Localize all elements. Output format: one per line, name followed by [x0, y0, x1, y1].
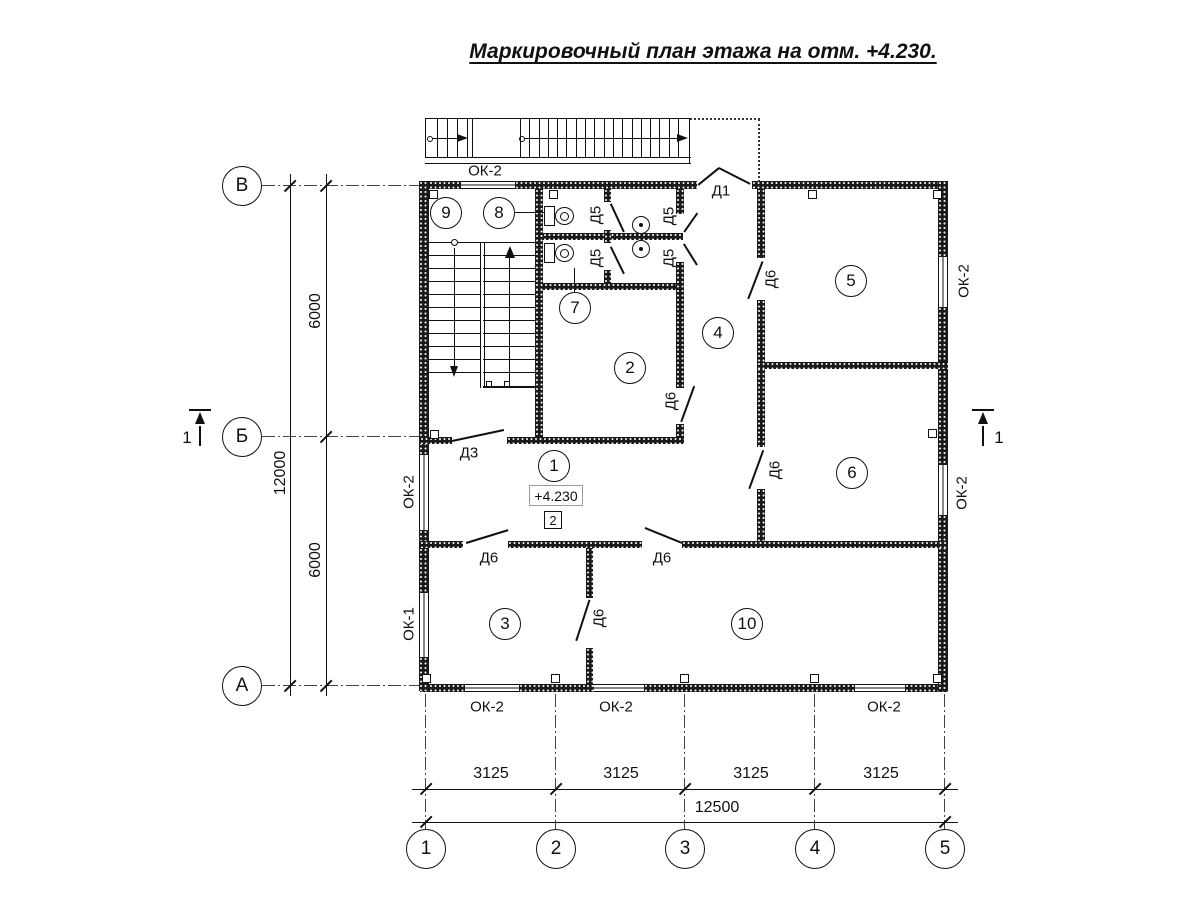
stair-tread: [483, 268, 535, 269]
node-marker: 2: [544, 511, 562, 529]
stair-tread: [483, 307, 535, 308]
wall-corridor-right: [757, 300, 765, 447]
window-mark-ok2: ОК-2: [468, 163, 502, 180]
door-leaf: [645, 527, 683, 543]
section-mark-shaft: [199, 426, 201, 446]
column-marker: [429, 190, 438, 199]
canopy-outline: [690, 118, 760, 120]
room-number-label: 4: [713, 323, 722, 343]
stair-edge: [428, 242, 535, 243]
wall-top: [515, 181, 697, 189]
ext-stair-edge: [425, 118, 426, 158]
stair-tread: [566, 118, 567, 157]
room-number-10: 10: [731, 608, 763, 640]
stair-tread: [641, 118, 642, 157]
room-number-label: 9: [441, 203, 450, 223]
door-mark-d5: Д5: [588, 206, 605, 225]
stair-tread: [585, 118, 586, 157]
axis-circle-v: В: [222, 166, 262, 206]
stair-tread: [483, 281, 535, 282]
axis-line: [684, 694, 685, 829]
door-leaf: [680, 386, 694, 422]
window-mark-ok2: ОК-2: [956, 264, 973, 298]
window-symbol: [594, 684, 644, 692]
door-mark-d3: Д3: [460, 445, 479, 462]
stair-tread: [483, 255, 535, 256]
axis-circle-b: Б: [222, 417, 262, 457]
column-marker: [933, 674, 942, 683]
wall-right: [938, 307, 948, 465]
wall-wc-partition: [604, 189, 611, 202]
stair-arrow-shaft: [432, 138, 458, 139]
window-symbol: [938, 257, 948, 307]
door-mark-d5: Д5: [661, 207, 678, 226]
axis-label: 5: [940, 838, 951, 860]
section-arrow-icon: [978, 412, 988, 424]
door-leaf: [575, 600, 590, 641]
stair-tread: [428, 333, 480, 334]
axis-circle-2: 2: [536, 829, 576, 869]
room-number-8: 8: [483, 197, 515, 229]
stair-tread: [613, 118, 614, 157]
toilet-bowl-inner: [560, 249, 569, 258]
door-mark-d6: Д6: [653, 550, 672, 567]
stair-tread: [576, 118, 577, 157]
wall-hall-south: [420, 541, 463, 548]
door-mark-d1: Д1: [712, 183, 731, 200]
axis-label: 3: [680, 838, 691, 860]
room-number-label: 7: [570, 298, 579, 318]
sink-drain: [639, 247, 643, 251]
window-symbol: [461, 181, 515, 189]
toilet-bowl-inner: [560, 212, 569, 221]
axis-line: [262, 185, 419, 186]
door-mark-d6: Д6: [767, 461, 784, 480]
stair-tread: [483, 333, 535, 334]
wall-left: [419, 530, 429, 593]
stair-tread: [669, 118, 670, 157]
column-marker: [430, 430, 439, 439]
door-leaf: [610, 203, 624, 232]
door-leaf: [610, 246, 624, 274]
window-symbol: [419, 455, 429, 530]
ext-stair-edge: [472, 118, 473, 158]
ext-stair-edge: [425, 157, 691, 158]
axis-line: [814, 694, 815, 829]
column-marker: [808, 190, 817, 199]
stair-tread: [437, 118, 438, 157]
stair-tread: [594, 118, 595, 157]
stair-tread: [483, 346, 535, 347]
dimension-row-total: 12000: [272, 451, 290, 496]
room-number-label: 8: [494, 203, 503, 223]
ext-stair-edge: [425, 118, 691, 119]
column-marker: [549, 190, 558, 199]
axis-label: Б: [236, 426, 248, 448]
stair-tread: [428, 268, 480, 269]
stair-tread: [457, 118, 458, 157]
toilet-cistern: [544, 206, 555, 226]
door-mark-d6: Д6: [663, 392, 680, 411]
door-leaf: [683, 212, 697, 232]
window-symbol: [938, 465, 948, 515]
wall-axis-b: [507, 437, 683, 444]
axis-circle-3: 3: [665, 829, 705, 869]
wall-wc-middle: [543, 233, 683, 240]
wall-wc-right: [676, 262, 684, 388]
elevation-value: +4.230: [534, 488, 577, 504]
dimension-row-segment: 6000: [307, 542, 325, 578]
stair-tread: [659, 118, 660, 157]
wall-top: [752, 181, 948, 189]
stair-tread: [483, 294, 535, 295]
wall-room3-10-divider: [586, 648, 593, 691]
stair-tread: [539, 118, 540, 157]
stair-tread: [529, 118, 530, 157]
column-marker: [422, 674, 431, 683]
stair-tread: [428, 294, 480, 295]
dimension-col-segment: 3125: [863, 765, 899, 783]
wall-bottom: [519, 684, 594, 692]
room-number-label: 3: [500, 614, 509, 634]
wall-room5-6-divider: [757, 362, 948, 369]
wall-left: [419, 181, 429, 455]
room-number-label: 10: [738, 614, 757, 634]
axis-line: [262, 685, 419, 686]
column-marker: [933, 190, 942, 199]
door-mark-d5: Д5: [661, 249, 678, 268]
drawing-title: Маркировочный план этажа на отм. +4.230.: [469, 40, 936, 64]
door-leaf: [466, 529, 509, 543]
stair-up-arrow: [505, 246, 515, 258]
room-number-label: 2: [625, 358, 634, 378]
wall-corridor-right: [757, 189, 765, 258]
stair-tread: [428, 320, 480, 321]
window-mark-ok2: ОК-2: [954, 476, 971, 510]
door-mark-d5: Д5: [588, 249, 605, 268]
door-mark-d6: Д6: [480, 550, 499, 567]
window-symbol: [855, 684, 905, 692]
door-mark-d6: Д6: [591, 609, 608, 628]
wall-wc-partition: [604, 270, 611, 283]
dimension-line: [412, 822, 958, 823]
window-mark-ok2: ОК-2: [599, 699, 633, 716]
window-mark-ok1: ОК-1: [401, 607, 418, 641]
section-mark-label: 1: [182, 428, 191, 448]
stair-tread: [548, 118, 549, 157]
wall-stairwell: [535, 189, 543, 443]
dimension-col-segment: 3125: [733, 765, 769, 783]
section-mark-bar: [972, 409, 994, 411]
axis-line: [262, 436, 419, 437]
axis-line: [425, 694, 426, 829]
door-mark-d6: Д6: [763, 270, 780, 289]
ext-stair-edge: [425, 163, 691, 164]
stair-tread: [428, 307, 480, 308]
leader-line: [515, 212, 544, 213]
window-mark-ok2: ОК-2: [401, 475, 418, 509]
dimension-col-segment: 3125: [603, 765, 639, 783]
axis-line: [555, 694, 556, 829]
stair-tread: [483, 359, 535, 360]
axis-circle-4: 4: [795, 829, 835, 869]
stair-arrow-origin: [451, 239, 458, 246]
ext-stair-edge: [689, 118, 690, 164]
stair-tread: [467, 118, 468, 157]
room-number-label: 6: [847, 463, 856, 483]
dimension-col-total: 12500: [695, 799, 740, 817]
axis-label: 2: [551, 838, 562, 860]
stair-tread: [520, 118, 521, 157]
axis-line: [944, 694, 945, 829]
wall-corridor-right: [757, 489, 765, 548]
axis-circle-a: А: [222, 666, 262, 706]
column-marker: [810, 674, 819, 683]
stair-tread: [428, 359, 480, 360]
section-mark-bar: [189, 409, 211, 411]
section-arrow-icon: [195, 412, 205, 424]
dimension-line: [290, 174, 291, 696]
toilet-cistern: [544, 243, 555, 263]
column-marker: [680, 674, 689, 683]
wall-wc-bottom: [535, 283, 684, 290]
stair-stringer: [484, 242, 485, 388]
room-number-2: 2: [614, 352, 646, 384]
door-leaf: [452, 429, 504, 441]
room-number-7: 7: [559, 292, 591, 324]
room-number-6: 6: [836, 457, 868, 489]
section-mark-shaft: [982, 426, 984, 446]
column-marker: [551, 674, 560, 683]
door-leaf: [748, 450, 763, 489]
axis-circle-5: 5: [925, 829, 965, 869]
stair-tread: [557, 118, 558, 157]
window-symbol: [465, 684, 519, 692]
sink-drain: [639, 223, 643, 227]
stair-stringer: [480, 242, 481, 388]
column-marker: [928, 429, 937, 438]
door-leaf: [683, 243, 698, 265]
stair-tread: [678, 118, 679, 157]
wall-bottom: [644, 684, 855, 692]
axis-label: В: [236, 175, 249, 197]
stair-tread: [632, 118, 633, 157]
axis-circle-1: 1: [406, 829, 446, 869]
stair-tread: [447, 118, 448, 157]
wall-hall-south: [508, 541, 642, 548]
floor-plan-drawing: Маркировочный план этажа на отм. +4.230.: [0, 0, 1200, 900]
door-leaf: [747, 261, 763, 299]
wall-wc-partition: [604, 230, 611, 243]
room-number-label: 5: [846, 271, 855, 291]
dimension-col-segment: 3125: [473, 765, 509, 783]
dimension-row-segment: 6000: [307, 293, 325, 329]
stair-tread: [428, 281, 480, 282]
room-number-label: 1: [549, 456, 558, 476]
stair-tread: [622, 118, 623, 157]
window-mark-ok2: ОК-2: [867, 699, 901, 716]
axis-label: А: [236, 675, 249, 697]
wall-room3-10-divider: [586, 548, 593, 598]
room-number-3: 3: [489, 608, 521, 640]
stair-tread: [428, 255, 480, 256]
window-symbol: [419, 593, 429, 657]
stair-newel: [486, 381, 492, 387]
room-number-5: 5: [835, 265, 867, 297]
room-number-1: 1: [538, 450, 570, 482]
stair-tread: [483, 372, 535, 373]
section-mark-label: 1: [994, 428, 1003, 448]
elevation-mark: +4.230: [529, 485, 583, 506]
leader-line: [574, 268, 575, 292]
axis-label: 4: [810, 838, 821, 860]
window-mark-ok2: ОК-2: [470, 699, 504, 716]
room-number-9: 9: [430, 197, 462, 229]
axis-label: 1: [421, 838, 432, 860]
stair-tread: [604, 118, 605, 157]
stair-tread: [428, 372, 480, 373]
canopy-outline: [758, 119, 760, 182]
stair-tread: [483, 320, 535, 321]
node-marker-label: 2: [549, 513, 556, 528]
stair-tread: [650, 118, 651, 157]
wall-hall-south: [682, 541, 948, 548]
room-number-4: 4: [702, 317, 734, 349]
stair-tread: [428, 346, 480, 347]
